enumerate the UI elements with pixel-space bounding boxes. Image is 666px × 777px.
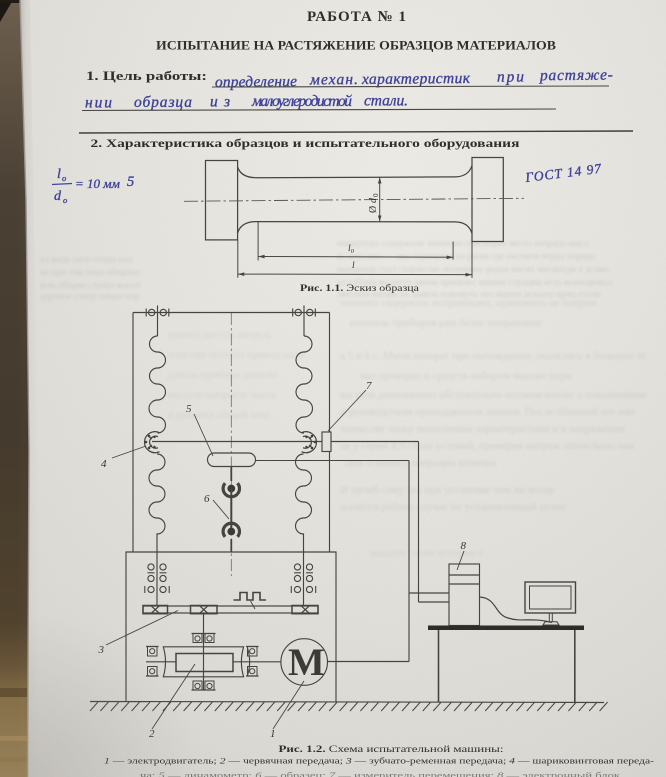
svg-text:ча; 5 — динамометр; 6 — образе: ча; 5 — динамометр; 6 — образец; 7 — изм… <box>140 771 620 777</box>
